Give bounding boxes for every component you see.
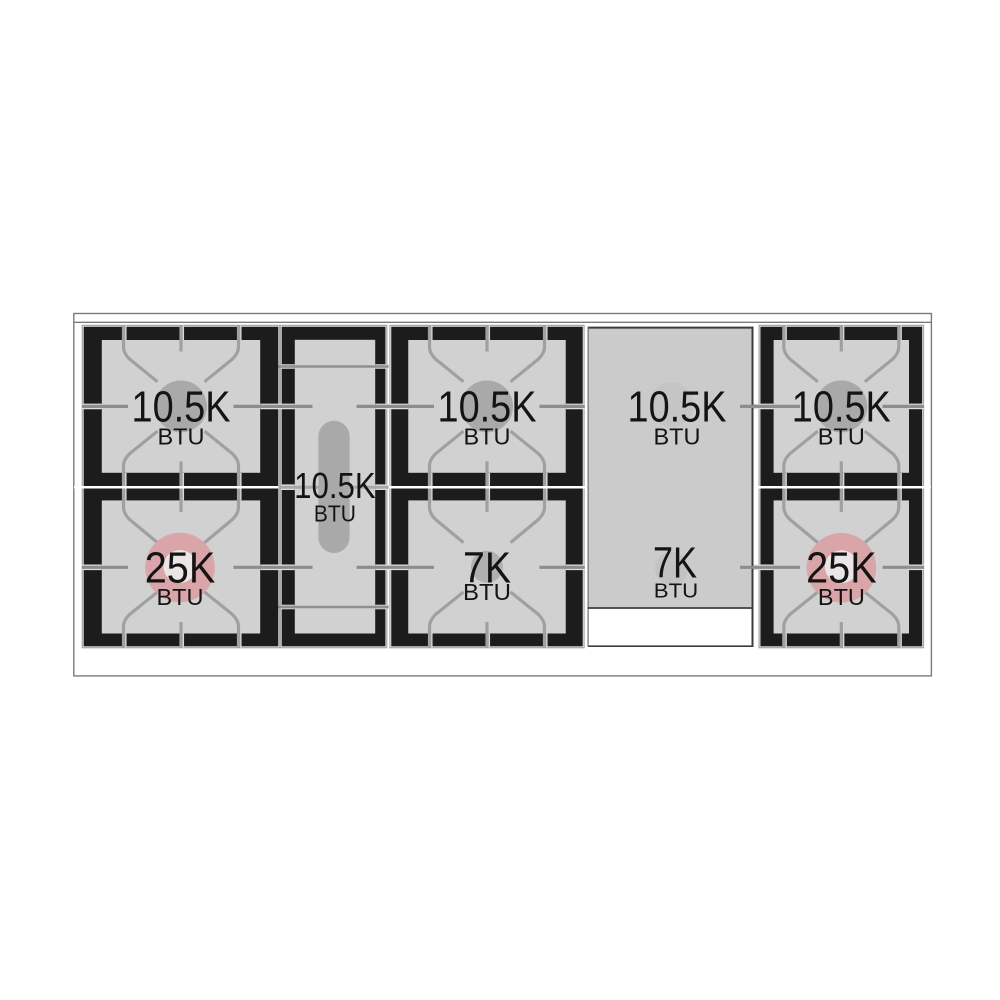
svg-text:BTU: BTU <box>654 423 701 449</box>
svg-text:BTU: BTU <box>818 423 865 449</box>
svg-text:BTU: BTU <box>818 584 865 610</box>
svg-text:BTU: BTU <box>158 423 205 449</box>
svg-text:BTU: BTU <box>464 423 511 449</box>
svg-text:BTU: BTU <box>314 500 356 526</box>
svg-text:BTU: BTU <box>654 581 699 603</box>
svg-text:BTU: BTU <box>157 584 204 610</box>
svg-text:BTU: BTU <box>463 579 511 605</box>
